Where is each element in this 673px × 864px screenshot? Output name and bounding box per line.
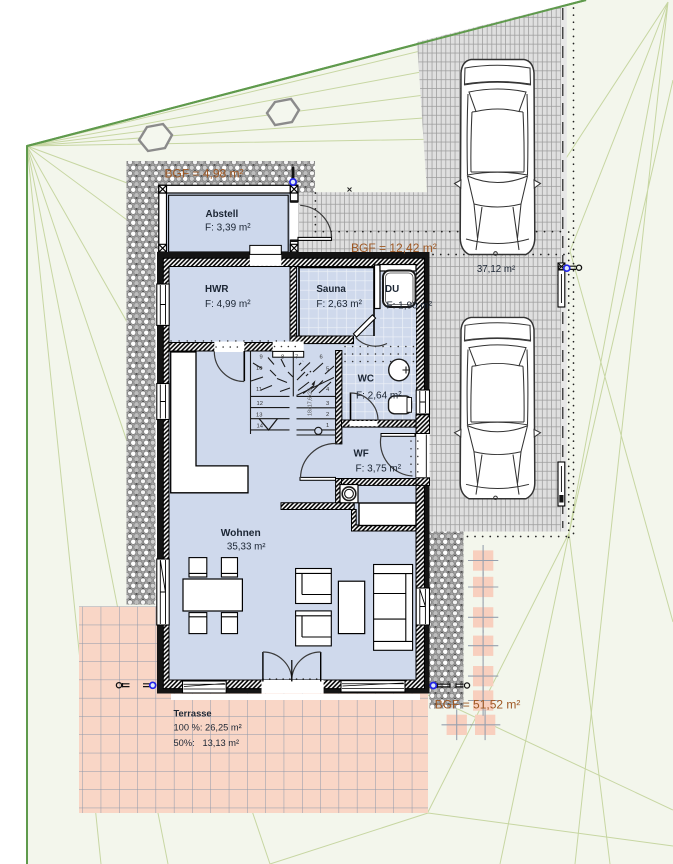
svg-text:Wohnen: Wohnen (221, 528, 261, 539)
svg-text:BGF = 51,52 m²: BGF = 51,52 m² (435, 697, 521, 711)
svg-text:F: 2,64 m²: F: 2,64 m² (356, 391, 402, 402)
svg-text:2: 2 (326, 412, 329, 418)
svg-text:F: 4,99 m²: F: 4,99 m² (205, 299, 251, 310)
svg-text:13: 13 (256, 413, 262, 419)
svg-text:F: 2,63 m²: F: 2,63 m² (316, 299, 362, 310)
svg-text:Terrasse: Terrasse (174, 709, 212, 719)
svg-text:F: 1,90 m²: F: 1,90 m² (387, 301, 433, 312)
svg-text:Sauna: Sauna (316, 284, 346, 295)
svg-text:37,12 m²: 37,12 m² (477, 264, 516, 275)
svg-text:F: 3,75 m²: F: 3,75 m² (356, 464, 402, 475)
svg-text:8: 8 (281, 355, 284, 361)
svg-text:6: 6 (320, 355, 323, 361)
svg-text:F: 3,39 m²: F: 3,39 m² (205, 223, 251, 234)
svg-text:WC: WC (358, 374, 374, 385)
svg-text:BGF = 4,98 m²: BGF = 4,98 m² (165, 167, 244, 181)
svg-text:12: 12 (257, 401, 263, 407)
svg-text:14: 14 (257, 424, 264, 430)
svg-text:BGF = 12,42 m²: BGF = 12,42 m² (351, 241, 437, 255)
svg-text:10: 10 (256, 366, 262, 372)
svg-text:18x17,6x25: 18x17,6x25 (308, 388, 314, 416)
svg-text:HWR: HWR (205, 284, 228, 295)
svg-text:5: 5 (326, 367, 329, 373)
svg-text:3: 3 (326, 401, 329, 407)
svg-text:50%: 13,13 m²: 50%: 13,13 m² (174, 738, 240, 748)
svg-text:WF: WF (354, 449, 369, 460)
svg-text:9: 9 (260, 355, 263, 361)
svg-text:1: 1 (326, 423, 329, 429)
svg-text:35,33 m²: 35,33 m² (227, 542, 266, 553)
svg-text:7: 7 (295, 355, 298, 361)
svg-text:100 %: 26,25 m²: 100 %: 26,25 m² (174, 722, 242, 732)
svg-text:11: 11 (256, 387, 262, 393)
svg-text:DU: DU (385, 284, 399, 295)
svg-text:Abstell: Abstell (206, 209, 239, 220)
